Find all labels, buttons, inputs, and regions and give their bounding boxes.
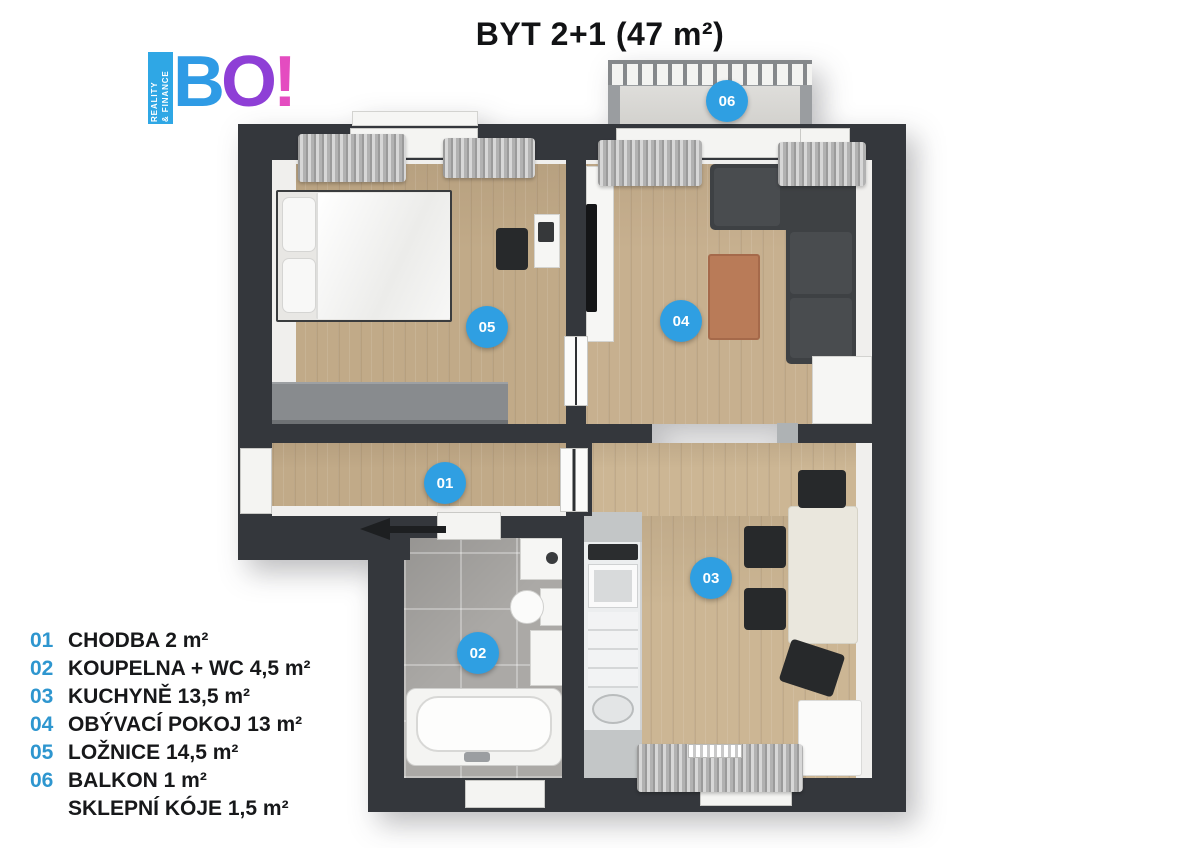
curtains	[598, 140, 702, 186]
sofa-cushion	[790, 298, 852, 358]
laptop	[538, 222, 554, 242]
pillow	[282, 258, 316, 313]
balcony-railing	[608, 60, 812, 88]
dining-chair	[798, 470, 846, 508]
sideboard	[812, 356, 872, 424]
radiator	[688, 744, 742, 758]
room-marker-02: 02	[457, 632, 499, 674]
wall	[238, 424, 652, 443]
floorplan: 01 02 03 04 05 06	[0, 0, 1200, 848]
countertop	[584, 512, 642, 542]
kitchen-drawers	[588, 612, 638, 688]
tv	[586, 204, 597, 312]
bedroom-door	[564, 336, 588, 406]
dining-table	[788, 506, 858, 644]
wall	[368, 538, 404, 812]
dining-chair	[744, 526, 786, 568]
bathroom-door	[437, 512, 501, 540]
curtains	[778, 142, 866, 186]
room-marker-04: 04	[660, 300, 702, 342]
curtains	[298, 134, 406, 182]
desk-chair	[496, 228, 528, 270]
sink	[592, 694, 634, 724]
wardrobe	[272, 382, 508, 424]
wall	[562, 516, 584, 812]
entrance-arrow	[360, 518, 390, 540]
stove	[588, 544, 638, 560]
duvet	[316, 193, 450, 319]
entrance-door	[240, 448, 272, 514]
oven-window	[594, 570, 632, 602]
wall-trim	[856, 156, 872, 778]
bath-faucet	[464, 752, 490, 762]
bathroom-rear-door	[465, 780, 545, 808]
pillar	[777, 423, 798, 443]
entrance-arrow	[388, 526, 446, 533]
room-marker-06: 06	[706, 80, 748, 122]
toilet-bowl	[510, 590, 544, 624]
bathtub-basin	[416, 696, 552, 752]
room-marker-01: 01	[424, 462, 466, 504]
sofa-cushion	[790, 232, 852, 294]
room-marker-05: 05	[466, 306, 508, 348]
wall	[872, 124, 906, 812]
coffee-table	[708, 254, 760, 340]
curtains	[443, 138, 535, 178]
wall-trim	[272, 506, 566, 516]
fridge	[798, 700, 862, 776]
wall	[798, 424, 872, 443]
washing-machine-door	[546, 552, 558, 564]
dining-chair	[744, 588, 786, 630]
pillow	[282, 197, 316, 252]
room-marker-03: 03	[690, 557, 732, 599]
window-exterior-sill	[352, 111, 478, 126]
bathroom-cabinet	[530, 630, 564, 686]
sofa-cushion	[714, 168, 780, 226]
floorplan-page: BYT 2+1 (47 m²) REALITY & FINANCE BO! 01…	[0, 0, 1200, 848]
kitchen-door	[560, 448, 588, 512]
